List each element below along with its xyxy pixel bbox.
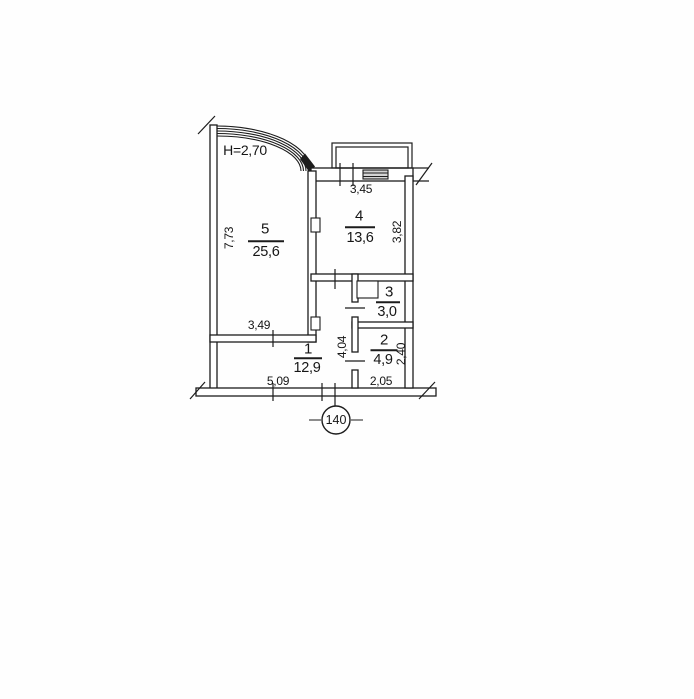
hall-wall-segment bbox=[352, 317, 358, 352]
room-5-frac-line bbox=[248, 240, 284, 242]
room-4-frac-line bbox=[345, 226, 375, 228]
room-1-number: 1 bbox=[304, 341, 312, 358]
dim-room4-depth: 3,82 bbox=[390, 221, 404, 243]
room-3-number: 3 bbox=[385, 284, 393, 301]
dim-room4-width: 3,45 bbox=[350, 182, 372, 196]
bottom-exterior-wall bbox=[196, 388, 436, 396]
floor-plan-page: H=2,70 7,73 5 25,6 3,45 4 13,6 3,82 3 3,… bbox=[0, 0, 694, 699]
room5-divider-wall bbox=[308, 171, 316, 342]
room-2-number: 2 bbox=[380, 332, 388, 349]
duct-niche bbox=[311, 317, 320, 330]
dim-room2-depth: 2,40 bbox=[394, 343, 408, 365]
balcony bbox=[332, 143, 412, 168]
hall-wall-segment bbox=[352, 370, 358, 388]
room-2-area: 4,9 bbox=[373, 352, 392, 368]
room5-bottom-wall bbox=[210, 335, 316, 342]
dim-hall-depth: 4,04 bbox=[335, 336, 349, 358]
left-exterior-wall bbox=[210, 125, 217, 392]
room-3-area: 3,0 bbox=[377, 304, 396, 320]
dim-left-wall: 7,73 bbox=[222, 227, 236, 249]
apartment-number: 140 bbox=[326, 413, 347, 427]
room-4-number: 4 bbox=[355, 208, 363, 225]
dim-room5-width: 3,49 bbox=[248, 318, 270, 332]
room-5-area: 25,6 bbox=[252, 244, 279, 260]
dim-room2-width: 2,05 bbox=[370, 374, 392, 388]
room-5-number: 5 bbox=[261, 221, 269, 238]
ceiling-height-label: H=2,70 bbox=[223, 142, 267, 158]
room-4-area: 13,6 bbox=[346, 230, 373, 246]
window bbox=[363, 170, 388, 179]
room4-bottom-wall bbox=[311, 274, 413, 281]
top-exterior-wall bbox=[311, 168, 413, 181]
room-1-area: 12,9 bbox=[293, 360, 320, 376]
room-3-frac-line bbox=[376, 301, 400, 303]
duct-niche bbox=[311, 218, 320, 232]
floor-plan: H=2,70 7,73 5 25,6 3,45 4 13,6 3,82 3 3,… bbox=[0, 0, 694, 699]
room3-niche bbox=[357, 281, 378, 298]
dim-room1-width: 5,09 bbox=[267, 374, 289, 388]
room3-room2-wall bbox=[352, 322, 413, 328]
room-1-frac-line bbox=[294, 357, 322, 359]
